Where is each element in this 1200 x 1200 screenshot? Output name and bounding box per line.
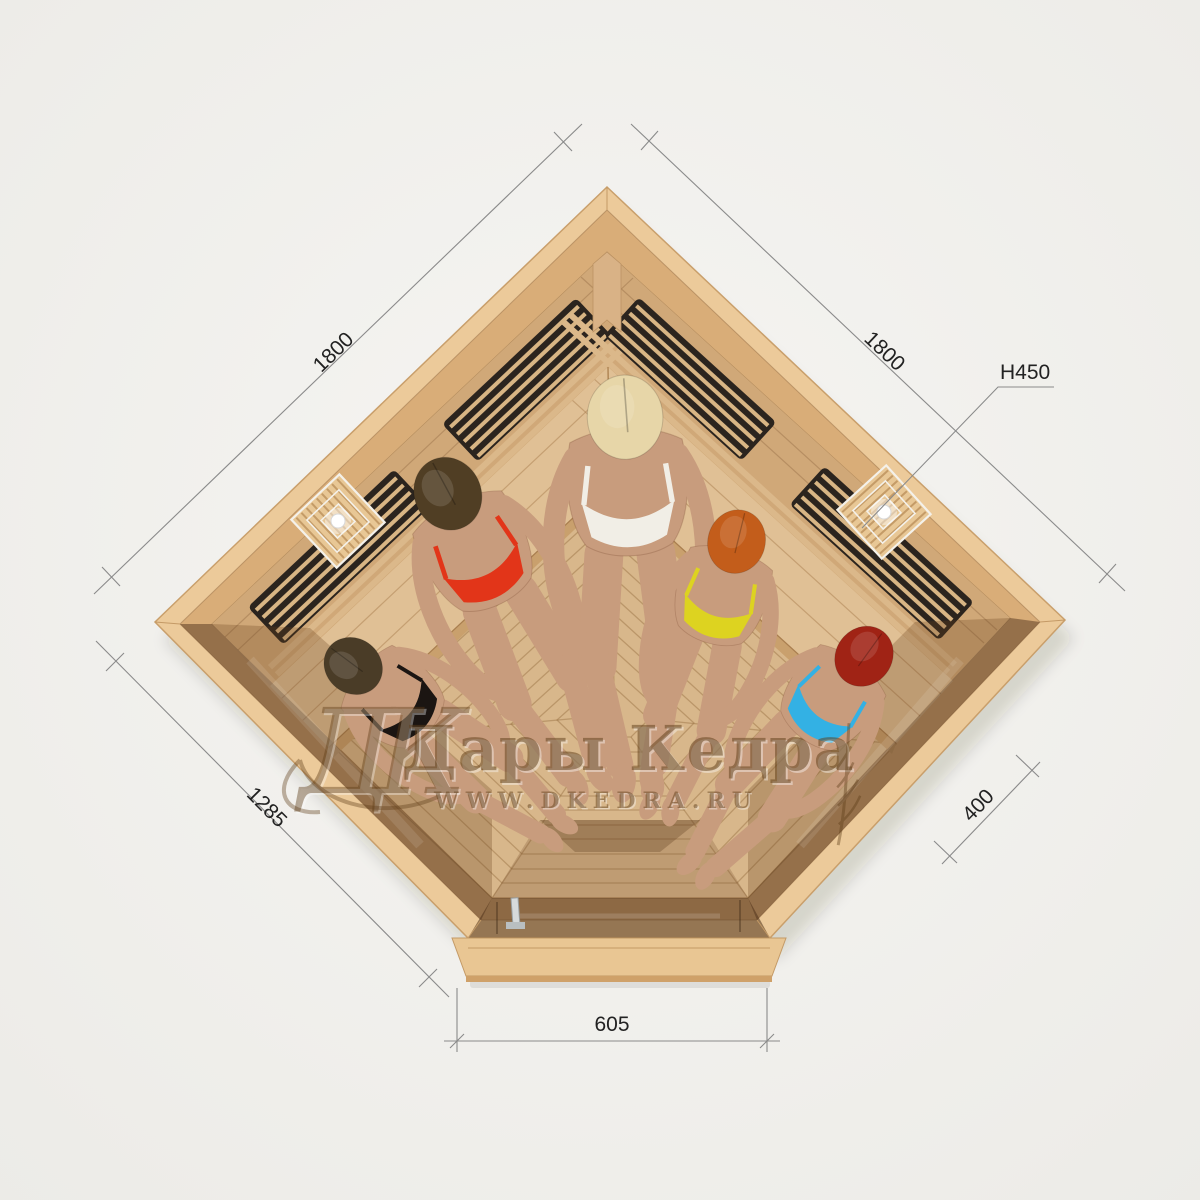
watermark-site: WWW.DKEDRA.RU: [433, 788, 758, 814]
dim-label-door: 605: [594, 1013, 629, 1036]
corner-trim: [593, 252, 621, 332]
dim-label-height: H450: [1000, 361, 1050, 384]
sauna-top-view-scene: ДК ДК Дары Кедра Дары Кедра WWW.DKEDRA.R…: [0, 0, 1200, 1200]
door-sill: [452, 938, 786, 988]
watermark-brand: Дары Кедра: [401, 712, 854, 785]
scene-canvas: ДК ДК Дары Кедра Дары Кедра WWW.DKEDRA.R…: [0, 0, 1200, 1200]
